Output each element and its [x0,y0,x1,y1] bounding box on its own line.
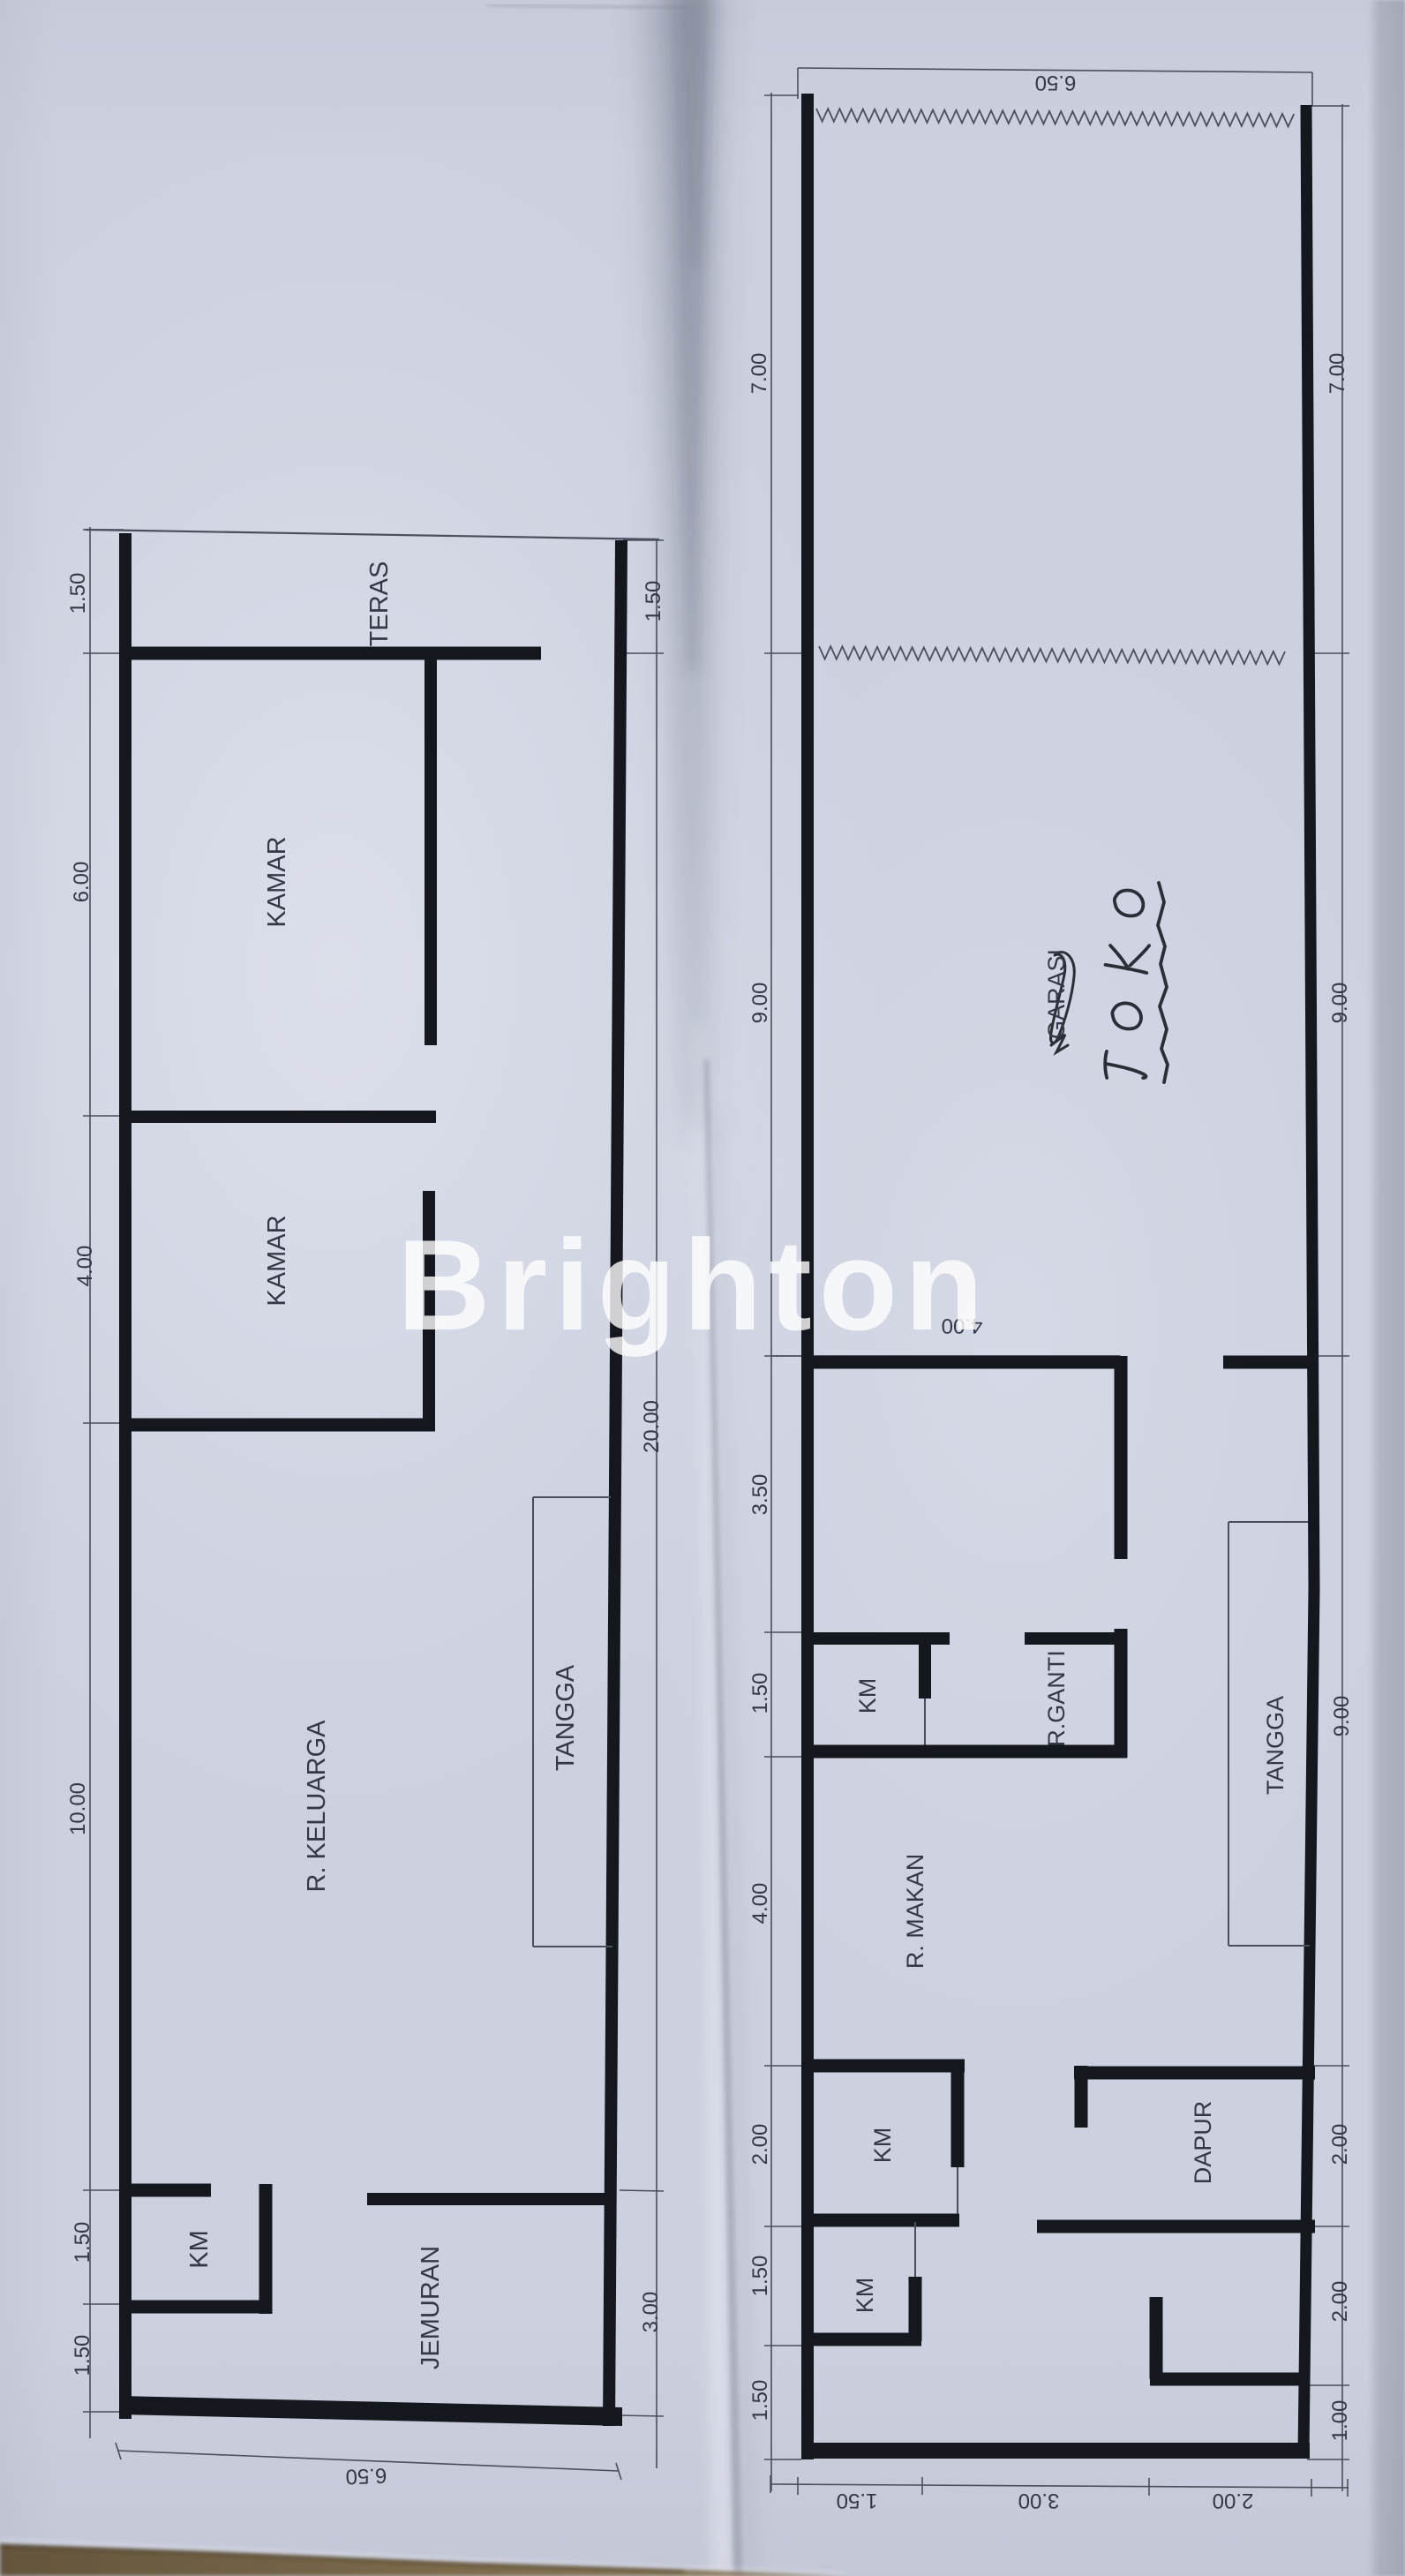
svg-text:9.00: 9.00 [1330,1696,1354,1737]
svg-text:GARASI: GARASI [1043,949,1070,1039]
svg-text:TANGGA: TANGGA [552,1664,580,1771]
svg-text:3.00: 3.00 [1018,2489,1060,2512]
svg-text:KAMAR: KAMAR [263,1215,291,1306]
svg-text:DAPUR: DAPUR [1190,2101,1216,2185]
svg-text:6.00: 6.00 [70,862,94,903]
svg-text:R. KELUARGA: R. KELUARGA [303,1720,331,1893]
svg-text:1.50: 1.50 [66,573,90,614]
svg-text:1.50: 1.50 [71,2222,94,2263]
svg-text:TERAS: TERAS [365,561,394,647]
svg-text:1.50: 1.50 [748,2256,772,2297]
svg-text:4.00: 4.00 [748,1883,772,1924]
svg-text:1.50: 1.50 [642,581,665,622]
svg-text:KM: KM [852,2278,878,2314]
svg-text:TANGGA: TANGGA [1262,1696,1289,1795]
svg-text:20.00: 20.00 [640,1400,664,1453]
svg-text:R. MAKAN: R. MAKAN [902,1854,928,1970]
svg-text:3.50: 3.50 [748,1474,772,1516]
svg-text:10.00: 10.00 [66,1782,90,1835]
svg-text:JEMURAN: JEMURAN [417,2246,445,2369]
svg-text:1.50: 1.50 [71,2335,94,2376]
svg-text:2.00: 2.00 [1213,2489,1254,2512]
svg-text:6.50: 6.50 [1035,71,1077,94]
svg-text:KM: KM [869,2128,896,2164]
svg-text:7.00: 7.00 [748,353,771,395]
svg-text:1.50: 1.50 [837,2489,878,2512]
svg-text:2.00: 2.00 [1328,2124,1352,2165]
svg-text:9.00: 9.00 [1328,983,1352,1024]
svg-text:KM: KM [854,1678,881,1714]
svg-text:KAMAR: KAMAR [263,836,291,927]
svg-text:7.00: 7.00 [1326,353,1349,395]
svg-text:2.00: 2.00 [1328,2281,1352,2323]
svg-text:4.00: 4.00 [73,1246,97,1287]
svg-text:6.50: 6.50 [345,2463,387,2489]
svg-text:1.00: 1.00 [1328,2400,1352,2442]
svg-text:2.00: 2.00 [748,2124,772,2165]
svg-text:9.00: 9.00 [748,983,772,1024]
svg-text:R.GANTI: R.GANTI [1043,1650,1070,1747]
svg-text:KM: KM [185,2230,214,2269]
svg-text:1.50: 1.50 [748,2380,772,2422]
svg-text:3.00: 3.00 [639,2292,663,2333]
svg-text:1.50: 1.50 [748,1673,772,1714]
